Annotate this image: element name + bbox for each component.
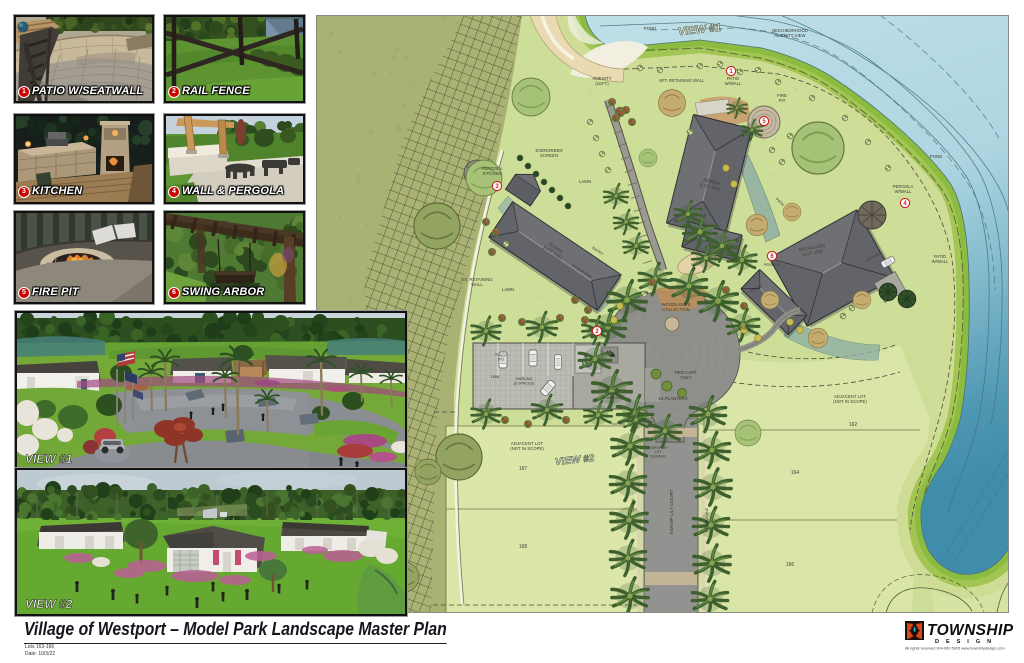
svg-text:166A: 166A [491, 375, 500, 379]
svg-text:LAWN: LAWN [579, 179, 591, 184]
svg-text:NEIGHBORHOODAMENITY VIEW: NEIGHBORHOODAMENITY VIEW [772, 28, 808, 38]
svg-text:EX. WETLAND: EX. WETLAND [705, 507, 709, 532]
svg-text:14' PLANTERS: 14' PLANTERS [658, 396, 688, 401]
svg-text:LAWN: LAWN [502, 287, 514, 292]
svg-text:TOWNSHIP: TOWNSHIP [927, 622, 1014, 639]
svg-text:PERGOLAKITCHEN: PERGOLAKITCHEN [482, 166, 503, 176]
svg-text:DESIGN: DESIGN [935, 639, 998, 645]
svg-text:162: 162 [849, 422, 858, 428]
svg-text:SWAMP LILY COURT: SWAMP LILY COURT [669, 489, 674, 534]
svg-text:167: 167 [519, 466, 528, 472]
svg-text:VIEW #1: VIEW #1 [25, 452, 73, 466]
svg-text:All rights reserved 904-962-59: All rights reserved 904-962-5905 www.tow… [905, 647, 1005, 651]
svg-text:5' WALK: 5' WALK [631, 498, 635, 512]
svg-text:166: 166 [786, 562, 795, 568]
svg-text:WOODLAND'SCOLLECTION: WOODLAND'SCOLLECTION [662, 302, 691, 312]
svg-text:PERGOLA: PERGOLA [764, 263, 781, 267]
svg-text:POND: POND [644, 26, 656, 31]
svg-text:PARKING(6 SPACES): PARKING(6 SPACES) [514, 377, 536, 386]
svg-text:164: 164 [791, 470, 800, 476]
svg-text:POND: POND [930, 154, 942, 159]
svg-text:LANAI: LANAI [634, 306, 646, 311]
svg-text:ADJACENT LOT(NOT IN SCOPE): ADJACENT LOT(NOT IN SCOPE) [510, 441, 544, 451]
svg-text:ADJACENT LOT(NOT IN SCOPE): ADJACENT LOT(NOT IN SCOPE) [833, 394, 867, 404]
svg-text:LAWN: LAWN [739, 326, 751, 331]
svg-text:PERGOLAW/WALL: PERGOLAW/WALL [893, 184, 914, 194]
svg-text:168: 168 [519, 544, 528, 550]
svg-text:VIEW #2: VIEW #2 [25, 597, 73, 611]
svg-text:6FT. RETAINING WALL: 6FT. RETAINING WALL [659, 78, 705, 83]
